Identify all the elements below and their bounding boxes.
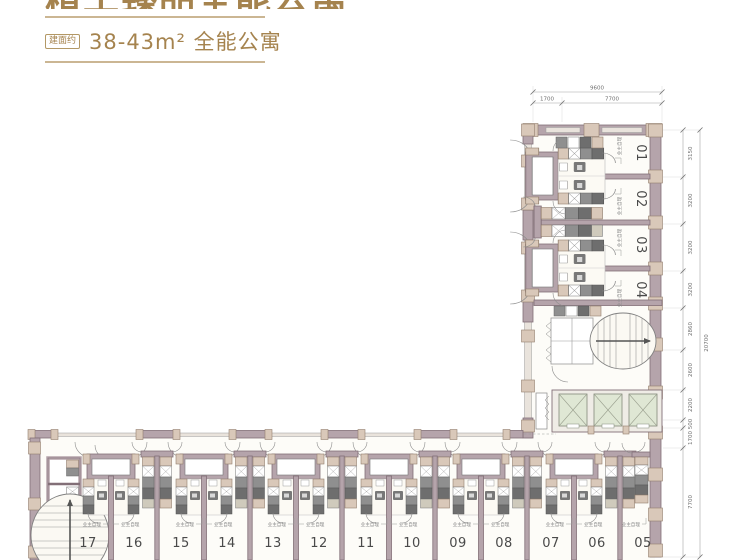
svg-text:业主自理: 业主自理 — [491, 521, 510, 528]
svg-text:业主自理: 业主自理 — [399, 521, 418, 528]
area-text: 38-43m² 全能公寓 — [89, 26, 282, 56]
unit-label-17: 17 — [79, 536, 97, 551]
dim-right-total: 20700 — [704, 334, 710, 352]
area-row: 建面约 38-43m² 全能公寓 — [45, 30, 345, 52]
unit-label-07: 07 — [542, 536, 560, 551]
owner-note: 业主自理 — [616, 136, 623, 155]
dim-top-total: 9600 — [590, 86, 604, 92]
unit-label-02: 02 — [633, 190, 648, 208]
storage-grid — [546, 318, 593, 364]
unit-label-01: 01 — [633, 144, 648, 162]
owner-note: 业主自理 — [616, 228, 623, 247]
owner-note: 业主自理 — [616, 288, 623, 307]
dim-right-seg3: 3200 — [688, 240, 694, 254]
elevator-car-3 — [629, 394, 657, 428]
area-badge: 建面约 — [45, 34, 80, 49]
owner-note: 业主自理 — [616, 196, 623, 215]
unit-label-09: 09 — [449, 536, 467, 551]
svg-text:业主自理: 业主自理 — [546, 521, 565, 528]
dim-right-seg4: 3200 — [688, 282, 694, 296]
page-title-clipped: 精工臻品全能公寓 — [45, 0, 345, 9]
dim-right-seg9: 1700 — [688, 431, 694, 445]
dim-right-seg6: 2600 — [688, 363, 694, 377]
unit-pod-pair-03-04 — [510, 232, 615, 304]
unit-label-14: 14 — [218, 536, 236, 551]
dimension-top: 9600 1700 7700 — [531, 86, 665, 123]
unit-label-05: 05 — [634, 536, 652, 551]
svg-text:业主自理: 业主自理 — [361, 521, 380, 528]
page-title-text: 精工臻品全能公寓 — [45, 0, 345, 9]
svg-text:业主自理: 业主自理 — [83, 521, 102, 528]
elevator-bank — [536, 390, 662, 434]
divider-line-top — [45, 16, 265, 18]
svg-text:业主自理: 业主自理 — [306, 521, 325, 528]
unit-label-04: 04 — [633, 281, 648, 299]
unit-label-08: 08 — [495, 536, 513, 551]
dim-right-seg2: 3200 — [688, 193, 694, 207]
svg-text:业主自理: 业主自理 — [584, 521, 603, 528]
dim-right-seg8: 500 — [688, 418, 694, 429]
unit-label-06: 06 — [588, 536, 606, 551]
svg-text:业主自理: 业主自理 — [121, 521, 140, 528]
dim-top-seg2: 7700 — [605, 97, 619, 103]
dimension-right: 3150 3200 3200 3200 2860 2600 2200 500 1… — [663, 128, 710, 560]
unit-label-11: 11 — [357, 536, 375, 551]
svg-text:业主自理: 业主自理 — [453, 521, 472, 528]
divider-line-bottom — [45, 61, 265, 63]
unit-label-03: 03 — [633, 236, 648, 254]
svg-text:业主自理: 业主自理 — [214, 521, 233, 528]
unit-label-10: 10 — [403, 536, 421, 551]
unit-label-12: 12 — [310, 536, 328, 551]
svg-text:业主自理: 业主自理 — [268, 521, 287, 528]
unit-label-13: 13 — [264, 536, 282, 551]
dim-top-seg1: 1700 — [540, 97, 554, 103]
dim-right-seg10: 7700 — [688, 495, 694, 509]
dim-right-seg7: 2200 — [688, 398, 694, 412]
floor-plan: 9600 1700 7700 — [0, 0, 750, 560]
unit-label-15: 15 — [172, 536, 190, 551]
dim-right-seg5: 2860 — [688, 322, 694, 336]
page-header: 精工臻品全能公寓 建面约 38-43m² 全能公寓 — [45, 0, 345, 63]
unit-label-16: 16 — [125, 536, 143, 551]
svg-text:业主自理: 业主自理 — [622, 521, 641, 528]
elevator-car-2 — [594, 394, 622, 428]
elevator-car-1 — [559, 394, 587, 428]
core-stair — [590, 313, 656, 369]
svg-text:业主自理: 业主自理 — [176, 521, 195, 528]
dim-right-seg1: 3150 — [688, 146, 694, 160]
unit-pod-pair-01-02 — [510, 140, 615, 212]
